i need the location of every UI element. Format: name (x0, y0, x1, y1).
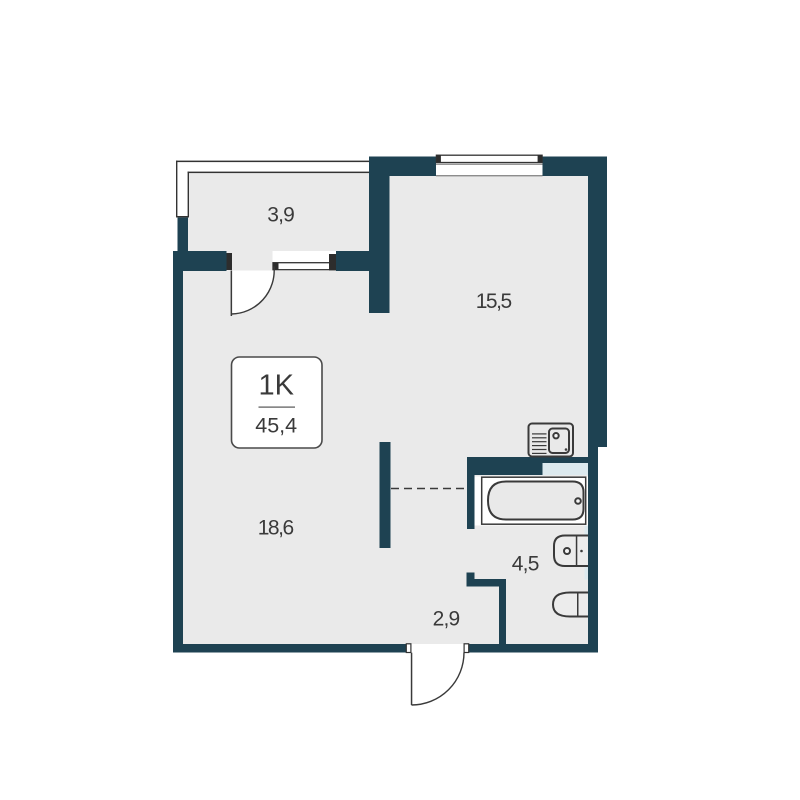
svg-text:18,6: 18,6 (258, 516, 294, 539)
svg-text:45,4: 45,4 (255, 413, 297, 437)
svg-text:1K: 1K (258, 370, 294, 402)
svg-text:4,5: 4,5 (512, 552, 539, 575)
svg-text:2,9: 2,9 (433, 608, 460, 631)
svg-text:15,5: 15,5 (476, 290, 512, 313)
svg-text:3,9: 3,9 (267, 203, 294, 226)
